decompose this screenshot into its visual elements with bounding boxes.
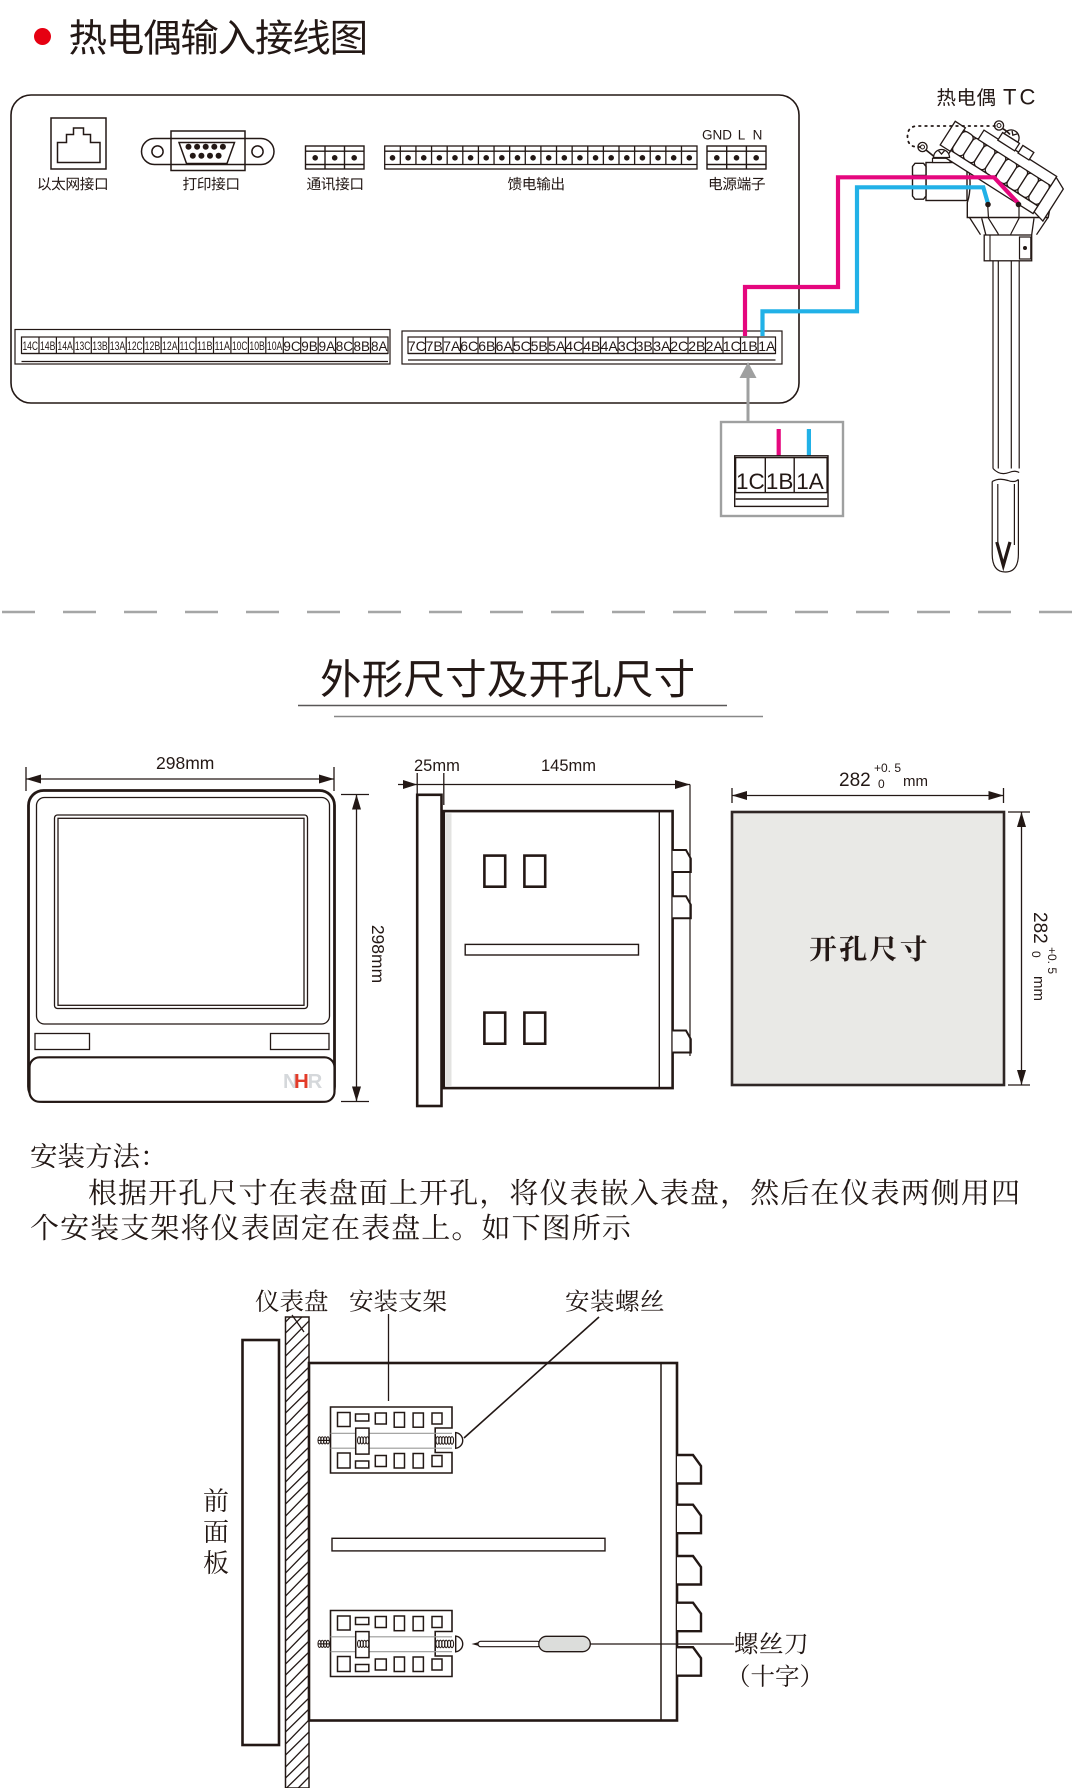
- svg-text:12B: 12B: [145, 339, 161, 353]
- svg-text:10C: 10C: [232, 339, 248, 353]
- svg-text:11B: 11B: [197, 339, 213, 353]
- svg-text:11A: 11A: [214, 339, 230, 353]
- svg-text:298mm: 298mm: [368, 925, 388, 983]
- svg-text:0: 0: [878, 777, 885, 791]
- svg-text:13A: 13A: [110, 339, 126, 353]
- svg-text:298mm: 298mm: [156, 753, 214, 773]
- svg-text:TC: TC: [1003, 85, 1038, 110]
- svg-text:4C: 4C: [565, 338, 583, 354]
- svg-text:0: 0: [1029, 951, 1043, 958]
- svg-text:R: R: [308, 1070, 323, 1093]
- svg-text:2A: 2A: [706, 338, 724, 354]
- svg-text:6A: 6A: [496, 338, 514, 354]
- svg-text:13C: 13C: [75, 339, 91, 353]
- svg-text:7C: 7C: [408, 338, 426, 354]
- svg-text:5B: 5B: [531, 338, 548, 354]
- svg-text:14A: 14A: [57, 339, 73, 353]
- svg-text:4A: 4A: [601, 338, 619, 354]
- svg-text:25mm: 25mm: [414, 757, 460, 775]
- svg-text:282: 282: [1029, 912, 1050, 944]
- svg-text:1A: 1A: [758, 338, 776, 354]
- svg-text:9B: 9B: [301, 339, 318, 354]
- svg-text:3C: 3C: [618, 338, 636, 354]
- svg-text:1A: 1A: [796, 469, 824, 494]
- svg-text:10B: 10B: [249, 339, 265, 353]
- svg-text:13B: 13B: [92, 339, 108, 353]
- svg-text:12C: 12C: [127, 339, 143, 353]
- svg-text:14C: 14C: [22, 339, 38, 353]
- svg-text:4B: 4B: [583, 338, 600, 354]
- svg-text:+0. 5: +0. 5: [1045, 947, 1059, 974]
- svg-text:8B: 8B: [354, 339, 371, 354]
- svg-text:145mm: 145mm: [541, 757, 596, 775]
- svg-text:8A: 8A: [371, 339, 388, 354]
- svg-text:1C: 1C: [736, 469, 765, 494]
- svg-text:9A: 9A: [319, 339, 336, 354]
- svg-text:11C: 11C: [180, 339, 196, 353]
- svg-text:L: L: [738, 128, 746, 143]
- svg-text:3A: 3A: [653, 338, 671, 354]
- svg-text:9C: 9C: [283, 339, 301, 354]
- svg-text:mm: mm: [1030, 976, 1047, 1001]
- svg-text:6C: 6C: [460, 338, 478, 354]
- svg-text:10A: 10A: [267, 339, 283, 353]
- svg-text:mm: mm: [903, 773, 928, 790]
- svg-text:1B: 1B: [766, 469, 794, 494]
- svg-text:GND: GND: [702, 128, 732, 143]
- svg-text:1B: 1B: [741, 338, 758, 354]
- svg-text:+0. 5: +0. 5: [874, 761, 901, 775]
- svg-text:2B: 2B: [688, 338, 705, 354]
- svg-text:2C: 2C: [670, 338, 688, 354]
- svg-text:7B: 7B: [426, 338, 443, 354]
- svg-text:5C: 5C: [513, 338, 531, 354]
- svg-text:7A: 7A: [443, 338, 461, 354]
- svg-text:14B: 14B: [40, 339, 56, 353]
- svg-text:8C: 8C: [336, 339, 354, 354]
- svg-text:282: 282: [839, 770, 871, 791]
- svg-text:6B: 6B: [478, 338, 495, 354]
- svg-text:12A: 12A: [162, 339, 178, 353]
- svg-text:1C: 1C: [723, 338, 741, 354]
- svg-text:5A: 5A: [548, 338, 566, 354]
- svg-text:N: N: [753, 128, 763, 143]
- svg-text:3B: 3B: [636, 338, 653, 354]
